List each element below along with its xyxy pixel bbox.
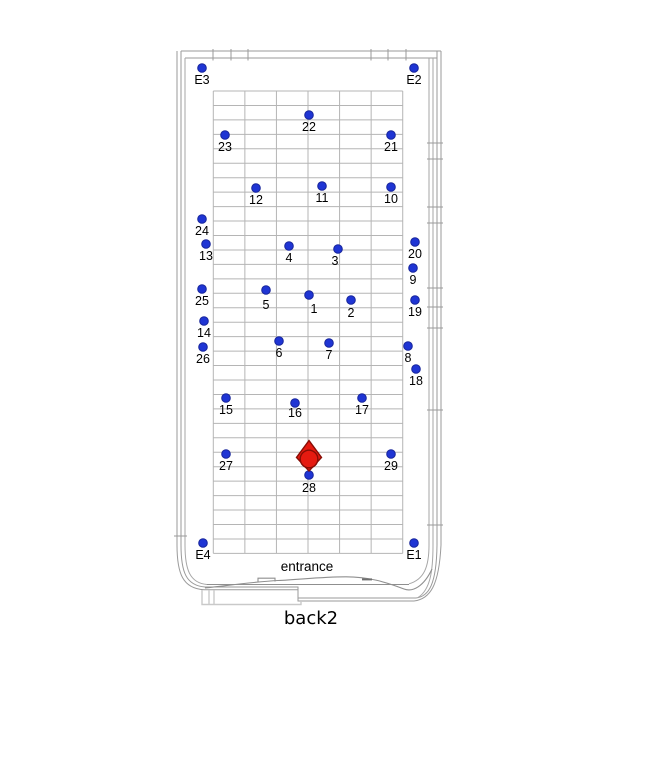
- node-dot-20: [411, 238, 420, 247]
- node-dot-7: [325, 339, 334, 348]
- node-label-7: 7: [326, 348, 333, 362]
- node-label-E3: E3: [194, 73, 209, 87]
- node-dot-13: [202, 240, 211, 249]
- node-label-23: 23: [218, 140, 232, 154]
- node-dot-25: [198, 285, 207, 294]
- node-dot-27: [222, 450, 231, 459]
- node-dot-6: [275, 337, 284, 346]
- node-dot-2: [347, 296, 356, 305]
- node-dot-19: [411, 296, 420, 305]
- node-label-E4: E4: [195, 548, 210, 562]
- node-label-3: 3: [332, 254, 339, 268]
- node-dot-21: [387, 131, 396, 140]
- node-label-20: 20: [408, 247, 422, 261]
- node-label-17: 17: [355, 403, 369, 417]
- node-dot-E3: [198, 64, 207, 73]
- node-label-26: 26: [196, 352, 210, 366]
- node-label-27: 27: [219, 459, 233, 473]
- node-label-15: 15: [219, 403, 233, 417]
- node-label-6: 6: [276, 346, 283, 360]
- node-dot-12: [252, 184, 261, 193]
- node-label-8: 8: [405, 351, 412, 365]
- node-label-4: 4: [286, 251, 293, 265]
- node-label-2: 2: [348, 306, 355, 320]
- floorplan-figure: E3E2E4E122232112111024134320925512191426…: [0, 0, 654, 760]
- node-label-28: 28: [302, 481, 316, 495]
- node-label-1: 1: [311, 302, 318, 316]
- node-label-11: 11: [316, 191, 329, 205]
- node-label-5: 5: [263, 298, 270, 312]
- node-dot-9: [409, 264, 418, 273]
- node-label-25: 25: [195, 294, 209, 308]
- node-label-9: 9: [410, 273, 417, 287]
- node-dot-E2: [410, 64, 419, 73]
- node-label-12: 12: [249, 193, 263, 207]
- figure-caption: back2: [0, 608, 622, 629]
- node-label-18: 18: [409, 374, 423, 388]
- node-dot-E4: [199, 539, 208, 548]
- node-dot-4: [285, 242, 294, 251]
- node-dot-22: [305, 111, 314, 120]
- node-dot-E1: [410, 539, 419, 548]
- node-dot-24: [198, 215, 207, 224]
- node-dot-8: [404, 342, 413, 351]
- node-dot-29: [387, 450, 396, 459]
- nodes-layer: E3E2E4E122232112111024134320925512191426…: [194, 64, 423, 562]
- node-label-19: 19: [408, 305, 422, 319]
- node-label-16: 16: [288, 406, 302, 420]
- node-label-14: 14: [197, 326, 211, 340]
- node-dot-1: [305, 291, 314, 300]
- entrance-label: entrance: [281, 559, 334, 574]
- node-label-13: 13: [199, 249, 213, 263]
- node-label-21: 21: [384, 140, 398, 154]
- node-dot-5: [262, 286, 271, 295]
- node-dot-3: [334, 245, 343, 254]
- node-label-24: 24: [195, 224, 209, 238]
- node-label-E1: E1: [406, 548, 421, 562]
- node-dot-15: [222, 394, 231, 403]
- marker-circle: [300, 450, 318, 468]
- node-dot-26: [199, 343, 208, 352]
- node-dot-23: [221, 131, 230, 140]
- node-label-E2: E2: [406, 73, 421, 87]
- node-label-22: 22: [302, 120, 316, 134]
- floorplan-svg: E3E2E4E122232112111024134320925512191426…: [0, 0, 654, 760]
- node-label-29: 29: [384, 459, 398, 473]
- node-label-10: 10: [384, 192, 398, 206]
- node-dot-10: [387, 183, 396, 192]
- node-dot-17: [358, 394, 367, 403]
- node-dot-18: [412, 365, 421, 374]
- node-dot-11: [318, 182, 327, 191]
- node-dot-14: [200, 317, 209, 326]
